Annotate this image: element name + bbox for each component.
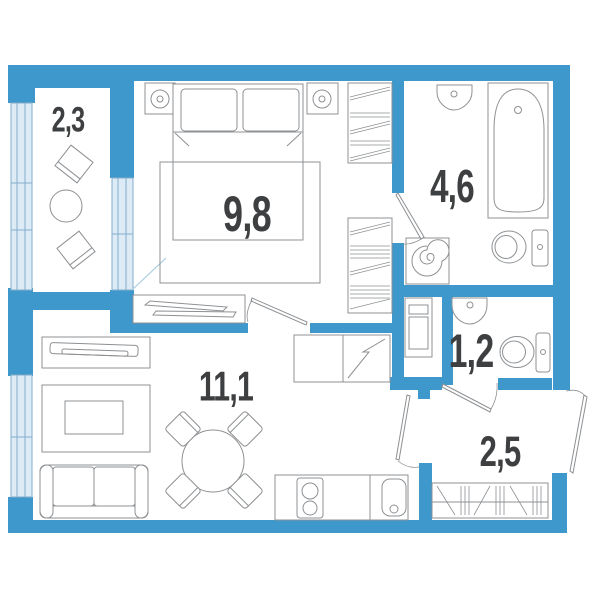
sofa-icon (40, 465, 148, 518)
bedroom-south-wall-left (133, 323, 248, 333)
bathroom-door-icon (396, 193, 424, 244)
balcony-top-wall (33, 65, 110, 88)
wc-sink-icon (452, 298, 487, 324)
balcony-partition-lower (110, 290, 134, 333)
shoe-wardrobe-icon (432, 483, 548, 518)
nightstand-left-icon (145, 83, 175, 114)
wc-south-wall-right (498, 378, 552, 390)
balcony-table-icon (50, 190, 82, 222)
wc-wall-stub (418, 390, 430, 399)
floor-plan-canvas: 2,3 9,8 4,6 1,2 11,1 2,5 (0, 0, 600, 600)
room-label-wc: 1,2 (449, 325, 494, 378)
wardrobe-bottom-icon (348, 218, 392, 313)
wc-door-icon (442, 383, 497, 412)
floor-plan: 2,3 9,8 4,6 1,2 11,1 2,5 (0, 0, 600, 600)
bedroom-door-icon (247, 298, 307, 325)
tv-stand-icon (42, 337, 150, 368)
entrance-right-block (552, 473, 567, 520)
bathroom-toilet-icon (492, 230, 548, 266)
nightstand-right-icon (307, 83, 338, 114)
bathtub-icon (488, 83, 548, 218)
living-room-window (11, 375, 32, 497)
bed-pillow-left (181, 89, 237, 131)
bed-pillow-right (243, 89, 299, 131)
room-label-bathroom: 4,6 (430, 162, 474, 212)
balcony-door-swing (133, 258, 166, 289)
bedroom-bathroom-wall-upper (392, 65, 404, 193)
kitchen-counter-icon (275, 475, 408, 520)
sliding-wardrobe-icon (133, 295, 245, 323)
balcony-chair-1-icon (55, 145, 93, 183)
washing-machine-icon (406, 238, 449, 284)
coffee-table-icon (65, 401, 123, 434)
room-label-living-kitchen: 11,1 (199, 362, 254, 409)
wardrobe-top-icon (348, 83, 392, 163)
balcony-chair-2-icon (57, 231, 95, 269)
bedroom-bathroom-wall-lower (392, 243, 404, 390)
room-label-balcony: 2,3 (52, 100, 85, 139)
entrance-door-icon (566, 390, 587, 473)
room-label-bedroom: 9,8 (223, 187, 271, 242)
room-balcony (50, 145, 95, 269)
bottom-wall (8, 520, 567, 533)
kitchen-door-icon (396, 395, 419, 467)
kitchen-hallway-wall (419, 463, 432, 520)
top-left-corner (8, 65, 35, 103)
refrigerator-icon (294, 335, 390, 382)
balcony-partition-upper (110, 65, 134, 178)
bathroom-wc-wall (390, 285, 570, 297)
balcony-bottom-wall (8, 292, 110, 310)
wc-toilet-icon (500, 333, 550, 372)
balcony-window (11, 103, 32, 290)
wc-south-wall-left (390, 377, 442, 390)
utility-cabinet-icon (405, 298, 432, 357)
room-label-hallway: 2,5 (480, 427, 521, 475)
right-wall (553, 65, 570, 390)
bathroom-sink-icon (437, 85, 472, 110)
balcony-door-window (112, 178, 133, 290)
bedroom-south-wall-right (310, 323, 392, 333)
